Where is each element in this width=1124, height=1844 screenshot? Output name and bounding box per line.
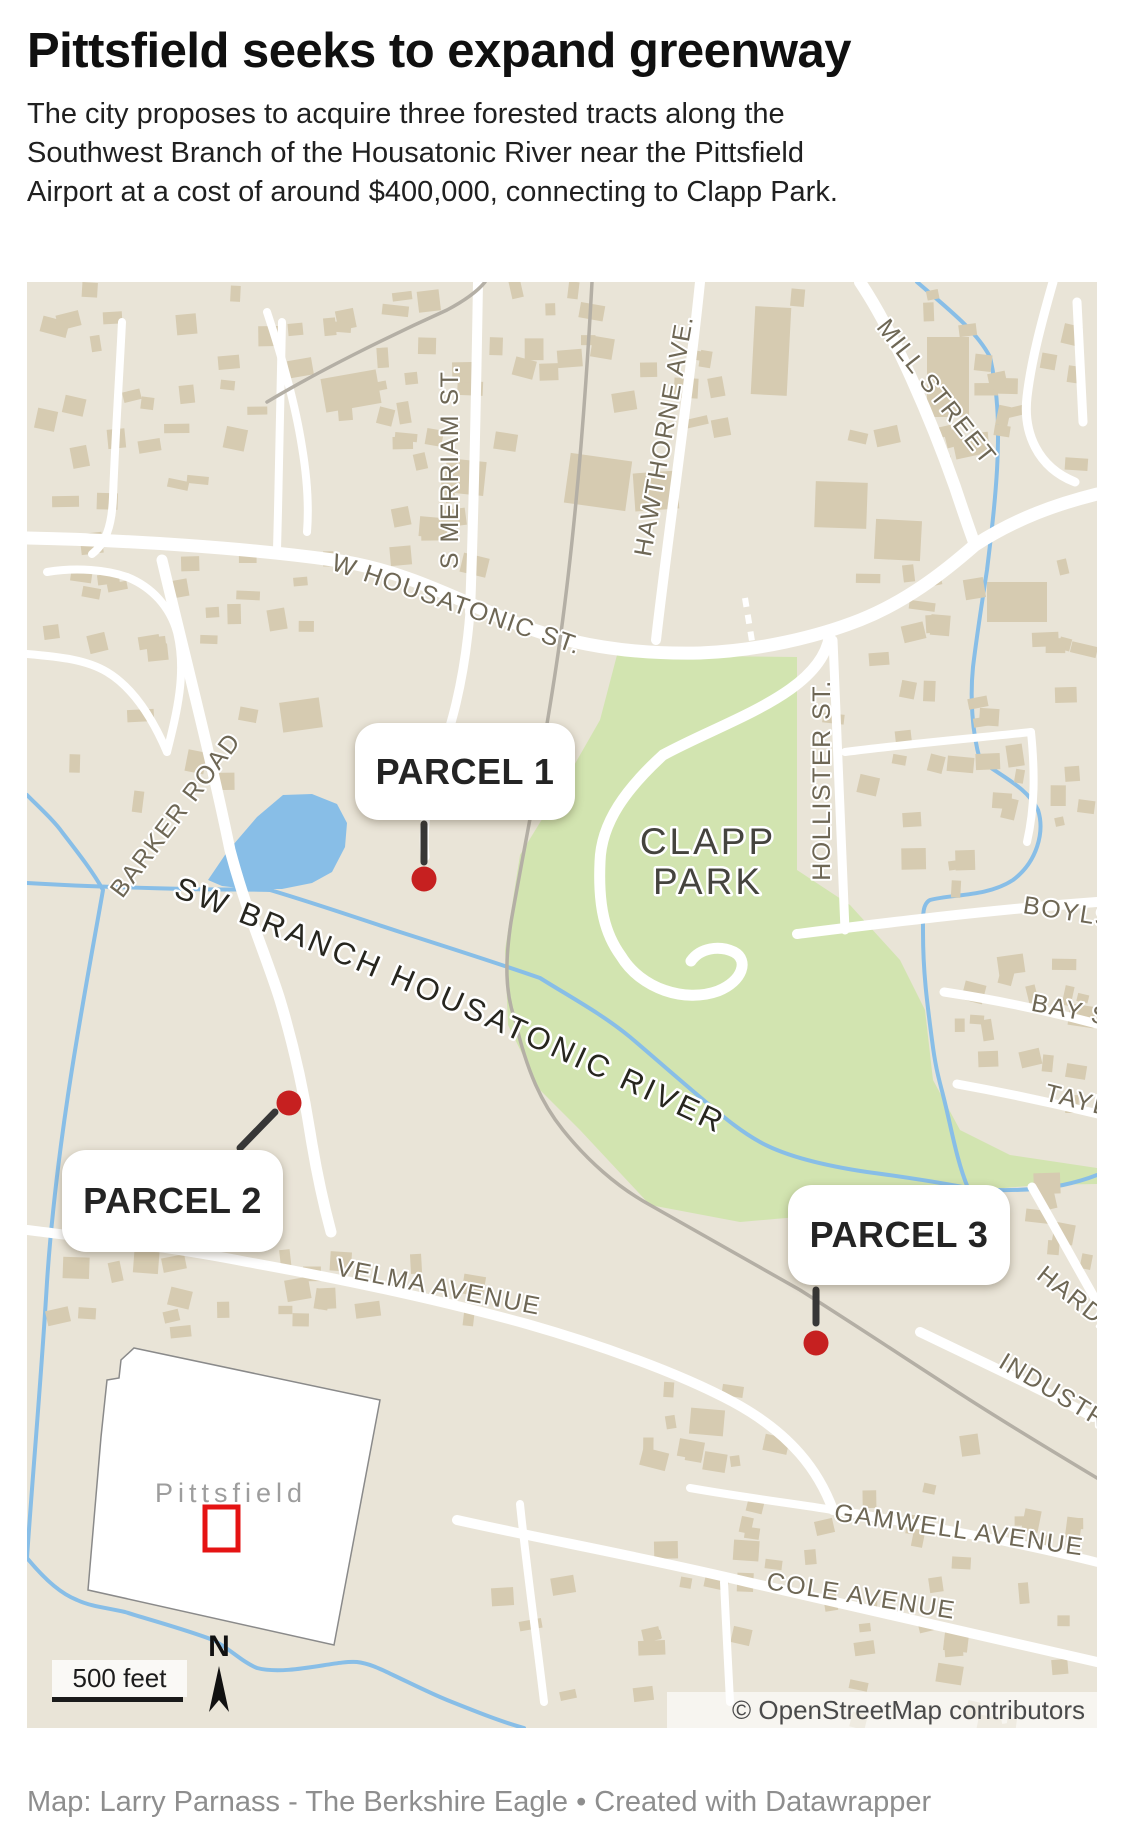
building-footprint: [899, 680, 917, 700]
street-label-hollister: HOLLISTER ST.: [808, 679, 836, 881]
building-footprint: [567, 282, 579, 299]
infographic-page: Pittsfield seeks to expand greenway The …: [0, 0, 1124, 1844]
building-footprint: [508, 282, 524, 299]
street-label-boylston: BOYLS: [1021, 891, 1097, 933]
building-footprint: [525, 338, 544, 360]
building-footprint: [392, 291, 413, 302]
compass: N: [197, 1632, 241, 1662]
building-footprint: [633, 1686, 654, 1702]
building-footprint: [654, 1541, 678, 1559]
road-east-block-1: [845, 732, 1031, 752]
building-footprint: [217, 1302, 230, 1318]
building-footprint: [922, 1483, 936, 1495]
building-footprint: [559, 1689, 577, 1701]
building-footprint: [396, 401, 411, 424]
building-footprint: [205, 607, 219, 618]
subtitle-line: Southwest Branch of the Housatonic River…: [27, 134, 1097, 173]
street-label-s-merriam: S MERRIAM ST.: [436, 365, 464, 569]
building-footprint: [859, 1623, 871, 1633]
building-footprint: [354, 1301, 381, 1319]
building-footprint: [689, 1408, 725, 1437]
building-footprint: [928, 1576, 944, 1593]
building-footprint: [287, 323, 303, 337]
building-footprint: [491, 1587, 514, 1606]
building-footprint: [70, 445, 91, 469]
building-footprint: [413, 452, 428, 471]
building-footprint: [951, 880, 961, 898]
building-footprint: [78, 1307, 96, 1319]
north-arrow-icon: [209, 1666, 229, 1712]
building-footprint: [376, 347, 389, 368]
building-footprint: [81, 586, 101, 600]
building-footprint: [963, 577, 986, 600]
building-footprint: [545, 303, 555, 315]
building-footprint: [122, 388, 142, 402]
building-footprint: [987, 582, 1047, 622]
building-footprint: [132, 791, 145, 813]
building-footprint: [220, 380, 235, 391]
building-footprint: [391, 506, 412, 528]
building-footprint: [550, 1575, 576, 1596]
street-label-hawthorne: HAWTHORNE AVE.: [629, 313, 699, 559]
clapp-park-label-line1: CLAPP: [640, 821, 776, 862]
building-footprint: [236, 590, 260, 600]
street-label-harding: HARDI: [1032, 1260, 1097, 1335]
building-footprint: [1057, 558, 1070, 575]
osm-attribution-link[interactable]: © OpenStreetMap contributors: [667, 1692, 1097, 1728]
building-footprint: [856, 574, 881, 584]
building-footprint: [167, 478, 189, 491]
building-footprint: [868, 652, 889, 666]
subtitle-line: Airport at a cost of around $400,000, co…: [27, 173, 1097, 212]
building-footprint: [175, 313, 197, 335]
building-footprint: [238, 707, 258, 724]
building-footprint: [895, 730, 912, 743]
page-title: Pittsfield seeks to expand greenway: [27, 24, 1097, 79]
road-nw-1: [27, 654, 167, 752]
building-footprint: [137, 438, 161, 454]
building-footprint: [814, 1518, 835, 1536]
building-footprint: [90, 335, 102, 352]
building-footprint: [853, 1640, 875, 1656]
building-footprint: [161, 1254, 187, 1273]
building-footprint: [902, 812, 921, 827]
building-footprint: [1032, 632, 1059, 647]
building-footprint: [539, 363, 558, 381]
building-footprint: [227, 604, 241, 624]
building-footprint: [974, 354, 993, 372]
parcel-2-dot: [277, 1091, 302, 1116]
building-footprint: [927, 754, 946, 775]
building-footprint: [944, 1639, 964, 1657]
subtitle-line: The city proposes to acquire three fores…: [27, 95, 1097, 134]
building-footprint: [611, 390, 637, 412]
building-footprint: [640, 362, 657, 377]
building-footprint: [279, 697, 323, 732]
parcel-2-connector: [240, 1112, 275, 1148]
building-footprint: [1057, 1615, 1069, 1626]
street-label-taylor: TAYL: [1042, 1079, 1097, 1122]
scale-bar-rule: [52, 1697, 183, 1702]
footer-credit: Map: Larry Parnass - The Berkshire Eagle…: [27, 1786, 931, 1819]
building-footprint: [266, 608, 287, 632]
inset-locator-map: Pittsfield: [88, 1348, 380, 1645]
building-footprint: [1064, 766, 1080, 782]
building-footprint: [292, 1313, 309, 1326]
building-footprint: [978, 1051, 999, 1068]
scale-bar-label: 500 feet: [52, 1660, 187, 1697]
building-footprint: [790, 288, 805, 307]
building-footprint: [223, 426, 248, 452]
clapp-park-label-line2: PARK: [653, 861, 763, 902]
building-footprint: [179, 384, 196, 404]
building-footprint: [167, 1287, 193, 1310]
building-footprint: [247, 406, 267, 414]
building-footprint: [744, 1526, 760, 1539]
building-footprint: [1065, 1063, 1087, 1080]
map-graphic: W HOUSATONIC ST. S MERRIAM ST. HAWTHORNE…: [27, 282, 1097, 1728]
road-east-block-2: [1027, 732, 1034, 842]
building-footprint: [164, 424, 189, 434]
building-footprint: [187, 475, 209, 485]
street-label-cole: COLE AVENUE: [765, 1567, 958, 1625]
building-footprint: [1065, 457, 1089, 471]
building-footprint: [418, 337, 436, 354]
building-footprint: [892, 754, 907, 766]
building-footprint: [958, 323, 977, 337]
page-subtitle: The city proposes to acquire three fores…: [27, 95, 1097, 212]
building-footprint: [679, 1577, 692, 1589]
building-footprint: [923, 681, 936, 702]
building-footprint: [848, 430, 869, 445]
building-footprint: [218, 355, 240, 370]
building-footprint: [299, 621, 314, 632]
building-footprint: [1054, 816, 1065, 826]
building-footprint: [278, 1306, 292, 1314]
map-canvas: W HOUSATONIC ST. S MERRIAM ST. HAWTHORNE…: [27, 282, 1097, 1728]
building-footprint: [133, 1250, 160, 1274]
building-footprint: [493, 431, 518, 452]
building-footprint: [733, 1540, 760, 1562]
building-footprint: [909, 600, 936, 612]
building-footprint: [1014, 769, 1025, 784]
building-footprint: [947, 756, 975, 774]
building-footprint: [639, 1447, 669, 1471]
building-footprint: [323, 317, 337, 336]
road-nw-4: [92, 322, 122, 554]
building-footprint: [389, 545, 412, 566]
building-footprint: [317, 1288, 336, 1310]
building-footprint: [392, 437, 413, 450]
building-footprint: [980, 1019, 994, 1042]
building-footprint: [923, 302, 934, 321]
building-footprint: [901, 848, 926, 870]
building-footprint: [1018, 1048, 1042, 1069]
building-footprint: [108, 1261, 124, 1283]
parcel-2-callout: PARCEL 2: [62, 1150, 283, 1252]
building-footprint: [334, 321, 351, 333]
scale-bar: 500 feet: [52, 1660, 187, 1702]
compass-north-label: N: [197, 1632, 241, 1662]
building-footprint: [751, 306, 792, 396]
building-footprint: [63, 1257, 90, 1279]
building-footprint: [293, 577, 308, 587]
building-footprint: [1052, 959, 1076, 971]
header: Pittsfield seeks to expand greenway The …: [27, 24, 1097, 212]
footpath-dashed: [745, 598, 752, 641]
building-footprint: [34, 408, 58, 432]
building-footprint: [376, 406, 395, 426]
building-footprint: [902, 564, 915, 582]
parcel-1-callout: PARCEL 1: [355, 723, 575, 820]
building-footprint: [86, 632, 108, 654]
building-footprint: [181, 556, 200, 571]
parcel-3-callout: PARCEL 3: [788, 1185, 1010, 1285]
building-footprint: [69, 754, 80, 773]
building-footprint: [1051, 1659, 1068, 1675]
building-footprint: [641, 1626, 661, 1643]
building-footprint: [62, 395, 87, 417]
building-footprint: [200, 635, 218, 644]
parcel-3-dot: [804, 1331, 829, 1356]
building-footprint: [975, 753, 1000, 770]
building-footprint: [1070, 641, 1097, 658]
street-label-gamwell: GAMWELL AVENUE: [833, 1499, 1086, 1562]
building-footprint: [382, 304, 409, 317]
building-footprint: [1042, 1054, 1054, 1072]
building-footprint: [1040, 352, 1058, 370]
building-footprint: [874, 519, 922, 561]
building-footprint: [52, 496, 79, 507]
building-footprint: [1051, 785, 1066, 806]
road-nw-6: [277, 322, 282, 550]
building-footprint: [638, 1640, 666, 1656]
building-footprint: [82, 282, 98, 298]
building-footprint: [730, 1626, 752, 1646]
building-footprint: [955, 1018, 965, 1031]
building-footprint: [45, 1306, 71, 1326]
building-footprint: [320, 369, 381, 412]
inset-city-label: Pittsfield: [155, 1478, 307, 1508]
building-footprint: [1055, 687, 1077, 703]
building-footprint: [702, 1451, 727, 1473]
road-edge-topright: [1077, 302, 1083, 422]
building-footprint: [170, 1325, 192, 1339]
building-footprint: [959, 1434, 980, 1457]
building-footprint: [711, 417, 731, 438]
building-footprint: [140, 396, 154, 410]
building-footprint: [43, 624, 60, 640]
road-cross-1: [724, 1582, 730, 1702]
building-footprint: [901, 621, 927, 643]
building-footprint: [814, 481, 868, 529]
building-footprint: [925, 615, 935, 633]
building-footprint: [804, 1549, 817, 1565]
building-footprint: [1018, 1582, 1030, 1604]
building-footprint: [230, 286, 241, 302]
building-footprint: [1070, 1518, 1083, 1529]
building-footprint: [873, 425, 900, 447]
building-footprint: [1005, 744, 1024, 768]
building-footprint: [564, 453, 632, 511]
building-footprint: [952, 1556, 972, 1569]
building-footprint: [417, 289, 441, 313]
building-footprint: [849, 1679, 869, 1692]
building-footprint: [557, 349, 583, 368]
building-footprint: [856, 774, 880, 797]
building-footprint: [643, 1437, 653, 1449]
building-footprint: [1077, 799, 1095, 814]
building-footprint: [730, 1455, 741, 1467]
building-footprint: [707, 376, 725, 398]
building-footprint: [665, 1415, 677, 1430]
building-footprint: [404, 372, 418, 385]
building-footprint: [489, 337, 503, 355]
building-footprint: [663, 1382, 674, 1398]
building-footprint: [162, 1309, 180, 1324]
building-footprint: [287, 357, 314, 378]
parcel-1-dot: [412, 867, 437, 892]
building-footprint: [1047, 1240, 1060, 1255]
building-footprint: [935, 1663, 963, 1686]
building-footprint: [284, 1277, 311, 1303]
